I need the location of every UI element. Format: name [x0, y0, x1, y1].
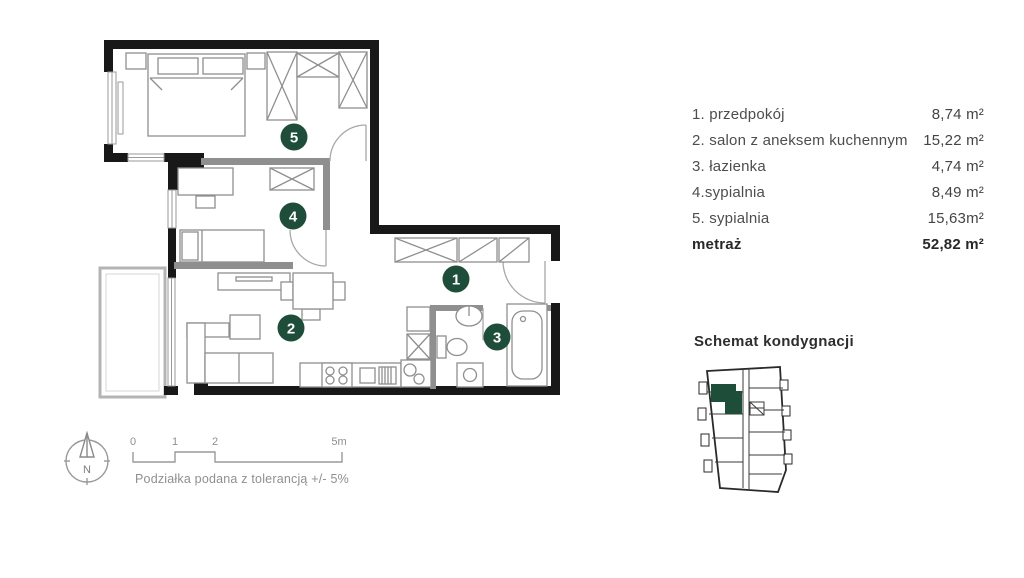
scale-tick: 1 — [172, 436, 178, 448]
room-label: 3. łazienka — [692, 154, 766, 180]
north-compass: N — [56, 426, 122, 492]
room-label: 5. sypialnia — [692, 206, 769, 232]
legend-row: 2. salon z aneksem kuchennym 15,22 m² — [692, 128, 984, 154]
room-area: 15,22 m² — [923, 128, 984, 154]
room-area: 8,74 m² — [932, 102, 984, 128]
total-area: 52,82 m² — [922, 232, 984, 258]
room-badge-3: 3 — [484, 324, 511, 351]
radiator — [118, 82, 123, 134]
room-label: 1. przedpokój — [692, 102, 785, 128]
floor-schematic-title: Schemat kondygnacji — [694, 333, 854, 350]
scale-tolerance-note: Podziałka podana z tolerancją +/- 5% — [135, 472, 349, 486]
window-bedroom4 — [168, 190, 176, 228]
scale-bar: 0 1 2 5m — [123, 434, 358, 466]
room-area: 8,49 m² — [932, 180, 984, 206]
legend-row: 5. sypialnia 15,63m² — [692, 206, 984, 232]
room-area: 15,63m² — [928, 206, 984, 232]
floor-plan-page: { "palette": { "accent_green": "#1e4e3a"… — [0, 0, 1024, 578]
svg-text:5: 5 — [290, 130, 298, 147]
room-badge-1: 1 — [443, 266, 470, 293]
legend-row: 1. przedpokój 8,74 m² — [692, 102, 984, 128]
door-room4 — [290, 230, 326, 266]
desk — [178, 168, 233, 195]
single-bed — [180, 230, 264, 262]
bathtub — [507, 304, 547, 386]
building-floor-schematic — [692, 362, 800, 502]
room-badge-5: 5 — [281, 124, 308, 151]
legend-total-row: metraż 52,82 m² — [692, 232, 984, 258]
tv-cabinet — [218, 273, 290, 290]
double-bed — [148, 54, 245, 136]
corner-sink — [401, 360, 431, 387]
tall-cabinet-x — [407, 334, 430, 359]
svg-text:3: 3 — [493, 330, 501, 347]
room-badge-4: 4 — [280, 203, 307, 230]
wardrobe — [339, 52, 367, 108]
bathroom-sink — [456, 306, 482, 326]
window-bedroom5 — [108, 72, 116, 144]
balcony-door — [168, 278, 175, 386]
scale-tick: 5m — [331, 436, 346, 448]
chair — [196, 196, 215, 208]
scale-bar-line — [133, 452, 342, 462]
room-label: 4.sypialnia — [692, 180, 765, 206]
scale-tick: 2 — [212, 436, 218, 448]
wardrobe — [267, 52, 297, 120]
wardrobe — [270, 168, 314, 190]
legend-row: 3. łazienka 4,74 m² — [692, 154, 984, 180]
coffee-table — [230, 315, 260, 339]
wardrobe — [297, 53, 339, 77]
stove — [322, 363, 352, 387]
apartment-floor-plan: 1 2 3 4 5 — [60, 20, 580, 420]
compass-rose-icon — [64, 433, 110, 485]
svg-text:4: 4 — [289, 209, 298, 226]
total-label: metraż — [692, 232, 742, 258]
door-room5 — [330, 125, 366, 161]
nightstand — [247, 53, 265, 69]
balcony — [100, 268, 165, 397]
legend-row: 4.sypialnia 8,49 m² — [692, 180, 984, 206]
svg-text:1: 1 — [452, 272, 460, 289]
tall-cabinet — [407, 307, 430, 331]
north-label: N — [83, 464, 91, 476]
area-legend: 1. przedpokój 8,74 m² 2. salon z aneksem… — [692, 102, 984, 258]
scale-tick: 0 — [130, 436, 136, 448]
window-step-wall — [128, 154, 164, 161]
room-label: 2. salon z aneksem kuchennym — [692, 128, 908, 154]
room-area: 4,74 m² — [932, 154, 984, 180]
room5-furniture — [126, 52, 367, 136]
wardrobe — [459, 238, 497, 262]
nightstand — [126, 53, 146, 69]
room-badge-2: 2 — [278, 315, 305, 342]
wardrobe — [499, 238, 529, 262]
toilet — [437, 336, 467, 358]
washing-machine — [457, 363, 483, 387]
svg-text:2: 2 — [287, 321, 295, 338]
hallway-wardrobes — [395, 238, 529, 262]
entry-door — [503, 261, 545, 303]
stairwell — [750, 402, 764, 415]
wardrobe — [395, 238, 457, 262]
